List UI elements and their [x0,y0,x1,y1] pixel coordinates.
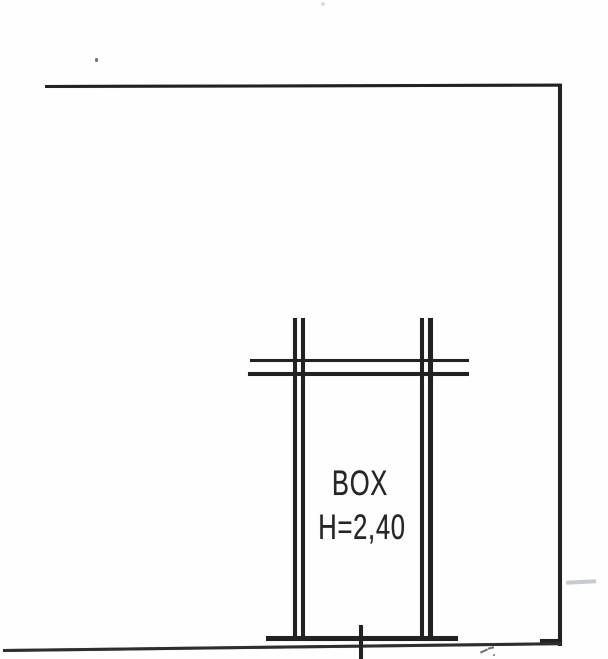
scan-speck-bottom-2 [488,646,494,649]
partition-wall-upper-line [250,359,469,362]
scan-smudge-right [566,579,596,585]
room-label: BOX [302,466,419,501]
scan-speck-bottom-3 [493,654,495,656]
scan-speck-top-center [321,2,325,6]
box-right-wall-outer-line [428,318,433,639]
box-left-wall-outer-line [293,318,297,640]
room-height-label: H=2,40 [304,510,421,545]
outer-wall-right [558,85,562,646]
scan-speck-bottom-1 [480,648,488,653]
partition-wall-lower-line [248,372,469,376]
scan-speck-top-left [95,58,98,62]
ground-line [3,642,562,652]
threshold-tick-mark [359,625,363,659]
floor-plan-canvas: BOX H=2,40 [0,0,608,659]
outer-wall-top [45,84,562,88]
box-right-wall-inner-line [420,318,424,639]
